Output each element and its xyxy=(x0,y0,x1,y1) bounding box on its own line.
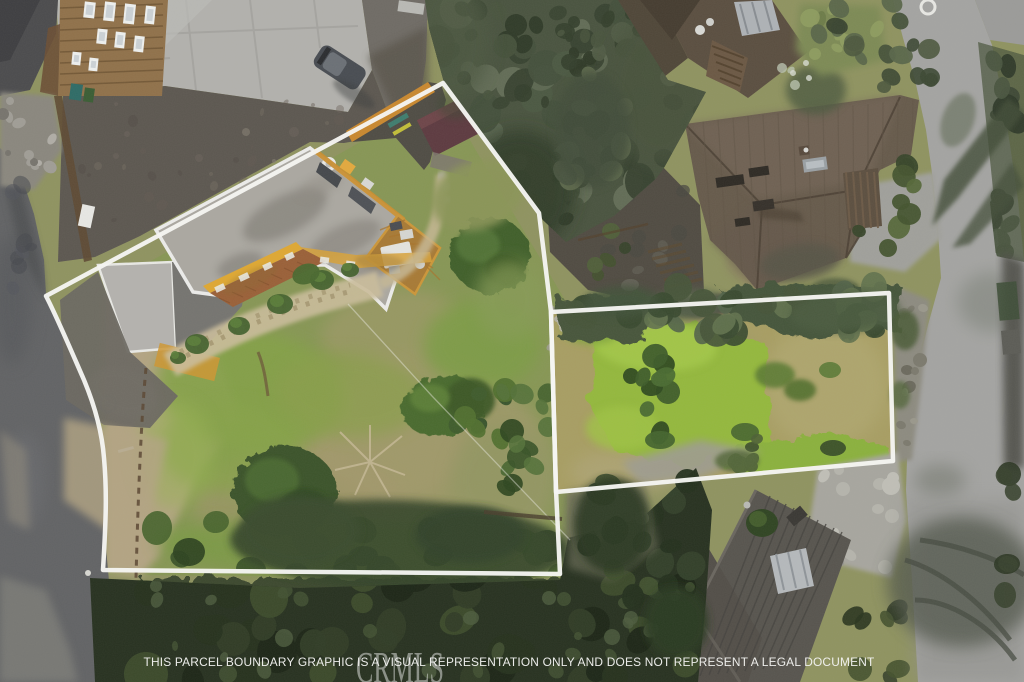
svg-text:THIS PARCEL BOUNDARY GRAPHIC I: THIS PARCEL BOUNDARY GRAPHIC IS A VISUAL… xyxy=(144,655,875,669)
